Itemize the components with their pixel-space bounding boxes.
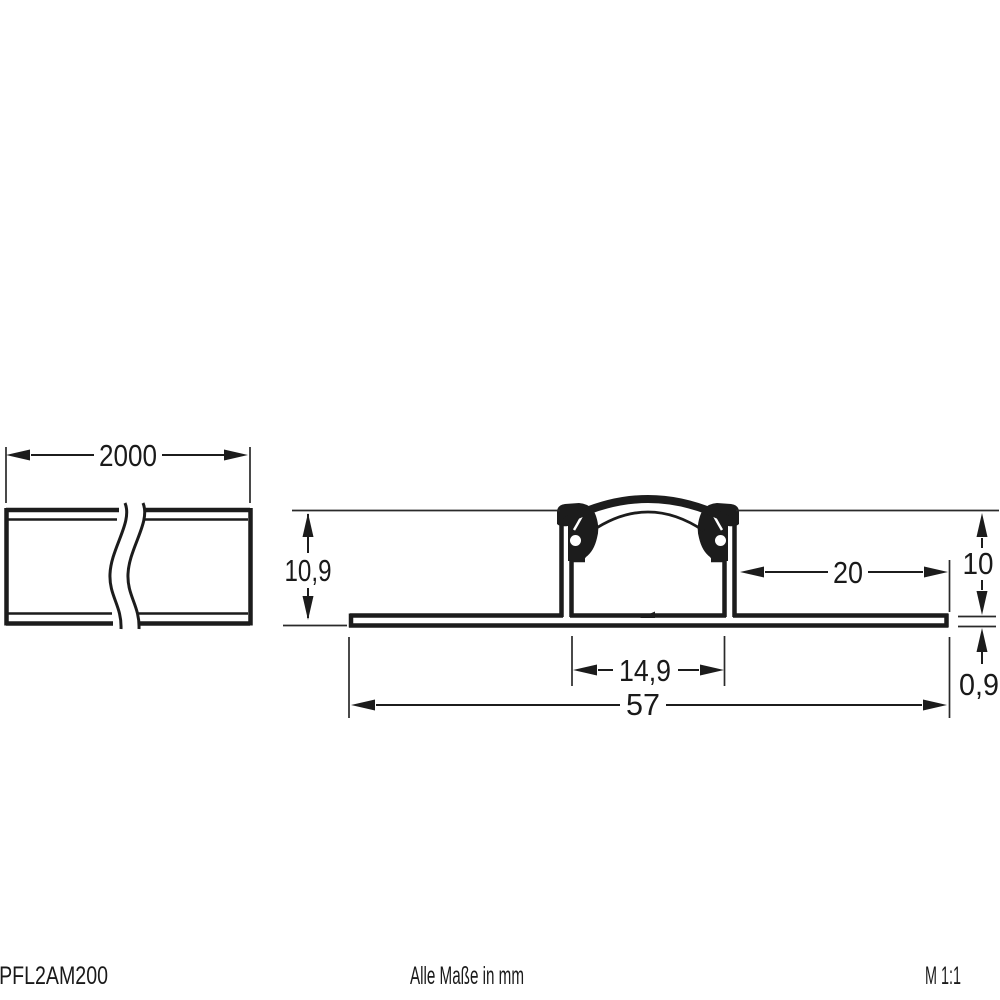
dim-label-right-flange: 20 <box>833 555 863 590</box>
dim-label-flange-thickness: 0,9 <box>959 667 999 702</box>
dim-arrow-up <box>977 513 988 537</box>
dimension-14-9: 14,9 <box>572 636 725 688</box>
dimension-10: 10 <box>736 511 999 617</box>
dim-arrow-up <box>977 628 988 652</box>
dim-label-total-height: 10,9 <box>285 553 332 588</box>
dim-arrow-down <box>303 596 314 620</box>
side-view <box>6 502 251 631</box>
units-note: Alle Maße in mm <box>410 962 524 990</box>
dimension-2000: 2000 <box>6 438 250 503</box>
dim-label-length: 2000 <box>99 438 157 473</box>
dim-arrow-right <box>224 450 248 461</box>
dim-arrow-right <box>923 700 947 711</box>
dim-arrow-down <box>977 591 988 615</box>
dim-arrow-right <box>700 665 724 676</box>
break-gap <box>110 502 145 631</box>
dim-arrow-left <box>351 700 375 711</box>
dim-label-inner-width: 14,9 <box>619 653 671 688</box>
dim-label-total-width: 57 <box>626 687 660 722</box>
dim-arrow-left <box>6 450 30 461</box>
dimension-0-9: 0,9 <box>958 627 999 703</box>
dim-label-body-height: 10 <box>963 546 994 581</box>
technical-drawing: 2000 10,9 <box>0 0 1000 1000</box>
cover-dome-inner <box>592 512 704 531</box>
article-number: APFL2AM200 <box>0 962 108 990</box>
dim-arrow-left <box>573 665 597 676</box>
dimension-10-9: 10,9 <box>283 511 560 626</box>
dimension-20: 20 <box>740 555 950 612</box>
dim-arrow-left <box>740 567 764 578</box>
footer: APFL2AM200 Alle Maße in mm M 1:1 <box>0 962 961 990</box>
dim-arrow-right <box>924 567 948 578</box>
hook-opening-left <box>570 535 581 546</box>
scale-note: M 1:1 <box>925 962 961 990</box>
drawing-canvas: 2000 10,9 <box>0 0 1000 1000</box>
hook-opening-right <box>715 535 726 546</box>
dim-arrow-up <box>303 513 314 537</box>
